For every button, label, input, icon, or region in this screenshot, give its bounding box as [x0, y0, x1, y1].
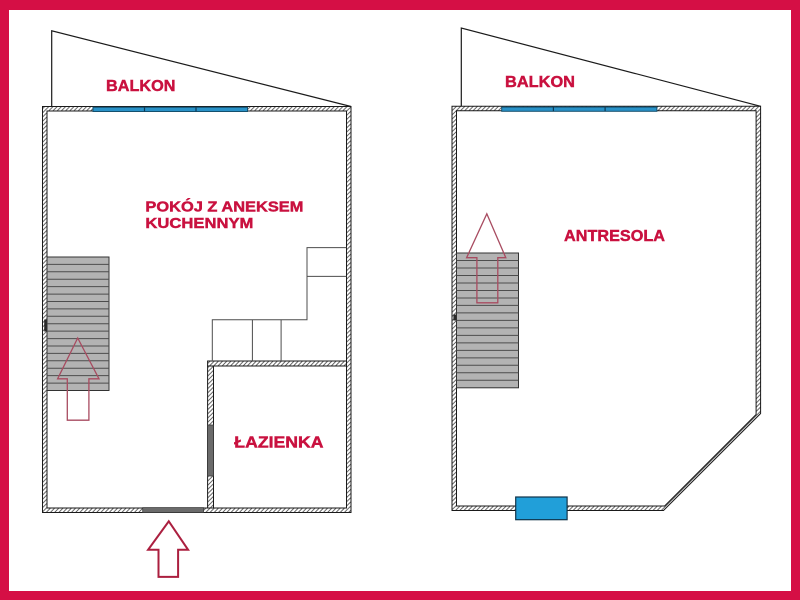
- svg-text:BALKON: BALKON: [106, 78, 176, 95]
- svg-text:BALKON: BALKON: [505, 74, 575, 91]
- svg-text:ŁAZIENKA: ŁAZIENKA: [234, 435, 324, 452]
- svg-text:ANTRESOLA: ANTRESOLA: [564, 228, 665, 245]
